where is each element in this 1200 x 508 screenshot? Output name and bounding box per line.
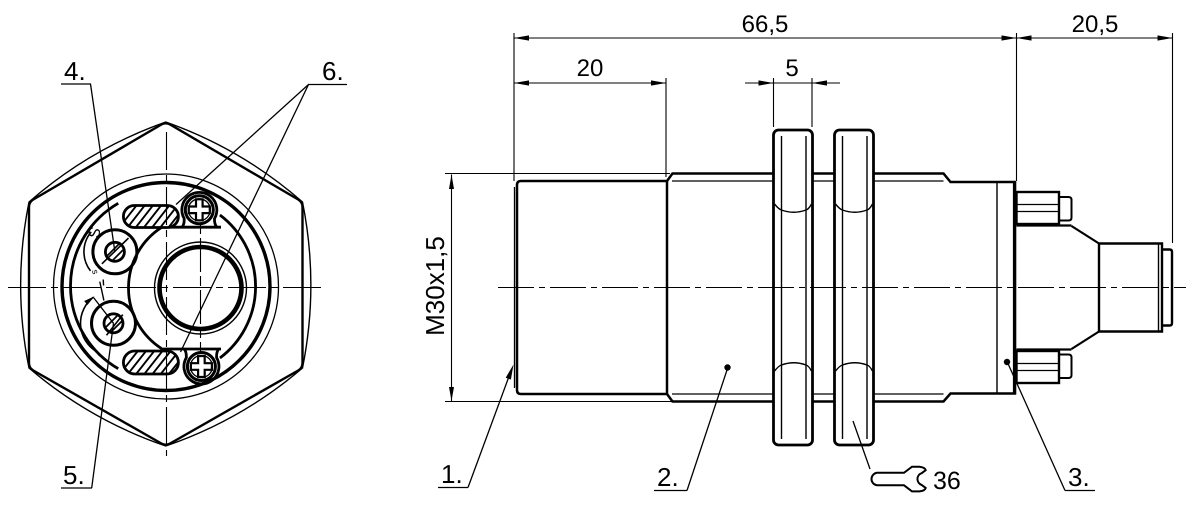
svg-text:2.: 2.	[657, 462, 679, 492]
svg-text:4.: 4.	[64, 56, 86, 86]
svg-text:5: 5	[785, 55, 798, 82]
svg-text:6.: 6.	[322, 56, 344, 86]
svg-text:20,5: 20,5	[1072, 11, 1119, 38]
svg-text:M30x1,5: M30x1,5	[420, 236, 450, 336]
svg-text:1.: 1.	[441, 459, 463, 489]
svg-text:36: 36	[933, 467, 961, 495]
svg-text:5.: 5.	[63, 460, 85, 490]
svg-text:66,5: 66,5	[742, 11, 789, 38]
svg-text:20: 20	[577, 55, 604, 82]
svg-text:3.: 3.	[1068, 462, 1090, 492]
